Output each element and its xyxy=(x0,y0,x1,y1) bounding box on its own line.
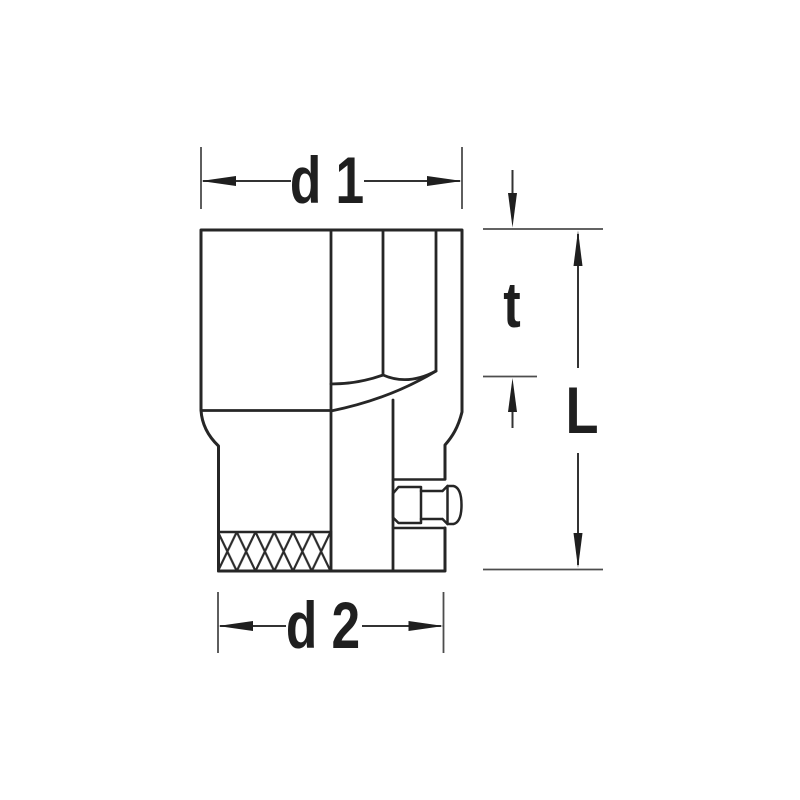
d2-arrow-right-icon xyxy=(409,621,444,631)
d1-arrow-right-icon xyxy=(427,176,462,186)
dimension-L: L xyxy=(483,231,603,570)
dimension-d1: d 1 xyxy=(201,143,462,218)
detent-pin-tip-shape xyxy=(448,486,462,524)
dimension-d2: d 2 xyxy=(218,588,444,663)
d2-label: d 2 xyxy=(286,588,360,663)
L-label: L xyxy=(565,373,598,447)
d1-label: d 1 xyxy=(290,143,364,218)
d2-arrow-left-icon xyxy=(218,621,253,631)
detent-pin-shaft-lines xyxy=(421,486,448,524)
knurl-band-rect xyxy=(219,532,332,571)
t-label: t xyxy=(503,270,520,341)
knurl-band xyxy=(219,532,332,571)
L-arrow-up-icon xyxy=(574,231,583,267)
t-arrow-down-icon xyxy=(508,193,517,228)
facet-scallop-arc-left xyxy=(331,375,383,384)
drawing-canvas: d 1 t L d 2 xyxy=(0,0,800,800)
detent-pin xyxy=(393,480,462,529)
t-extension-lines xyxy=(483,229,603,377)
detent-block-shape xyxy=(393,487,421,523)
socket-technical-drawing: d 1 t L d 2 xyxy=(0,0,800,800)
L-arrow-down-icon xyxy=(574,533,583,568)
t-arrow-up-icon xyxy=(508,378,517,412)
d1-arrow-left-icon xyxy=(201,176,236,186)
